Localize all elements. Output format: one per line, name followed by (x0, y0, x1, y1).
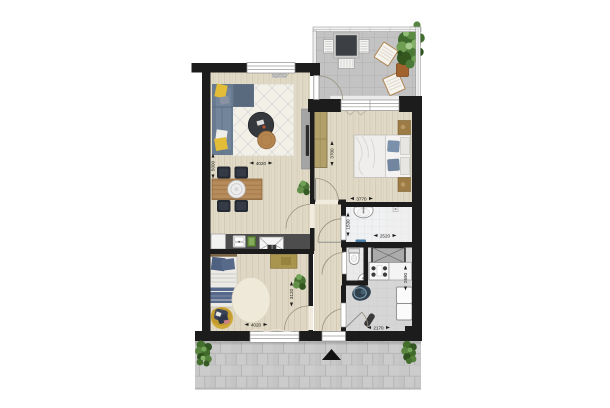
svg-text:4020: 4020 (256, 161, 267, 166)
svg-text:2170: 2170 (373, 325, 384, 330)
svg-text:1530: 1530 (346, 219, 351, 230)
svg-text:5000: 5000 (211, 160, 216, 171)
svg-text:4020: 4020 (251, 322, 262, 327)
svg-text:3120: 3120 (289, 288, 294, 299)
svg-text:2690: 2690 (403, 272, 408, 283)
svg-text:3700: 3700 (330, 148, 335, 159)
svg-text:3770: 3770 (356, 196, 367, 201)
svg-text:2520: 2520 (380, 233, 391, 238)
